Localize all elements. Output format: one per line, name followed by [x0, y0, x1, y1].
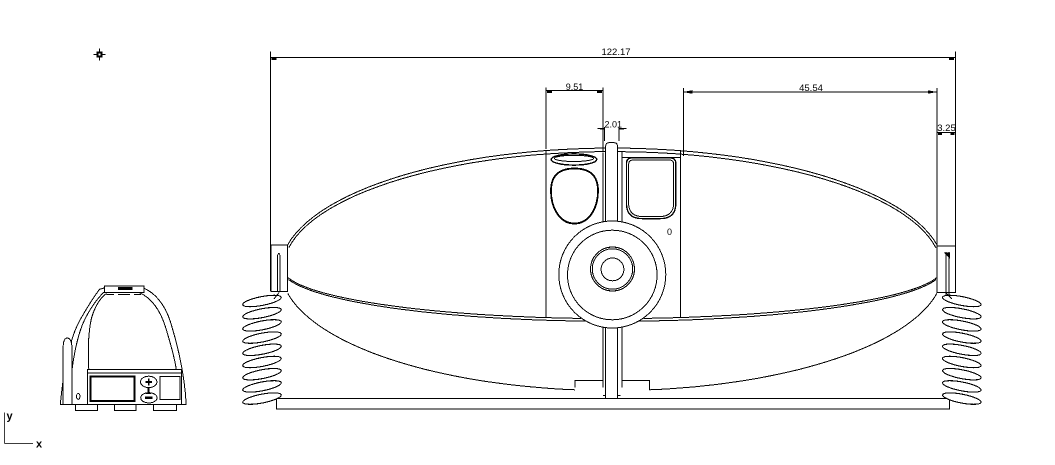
svg-text:2.01: 2.01: [605, 119, 623, 129]
svg-text:3.25: 3.25: [937, 123, 956, 134]
svg-text:122.17: 122.17: [601, 47, 630, 58]
svg-text:y: y: [7, 411, 14, 423]
svg-text:45.54: 45.54: [799, 83, 823, 94]
svg-text:9.51: 9.51: [566, 82, 584, 92]
svg-text:x: x: [36, 439, 43, 451]
svg-text:0: 0: [667, 227, 672, 237]
